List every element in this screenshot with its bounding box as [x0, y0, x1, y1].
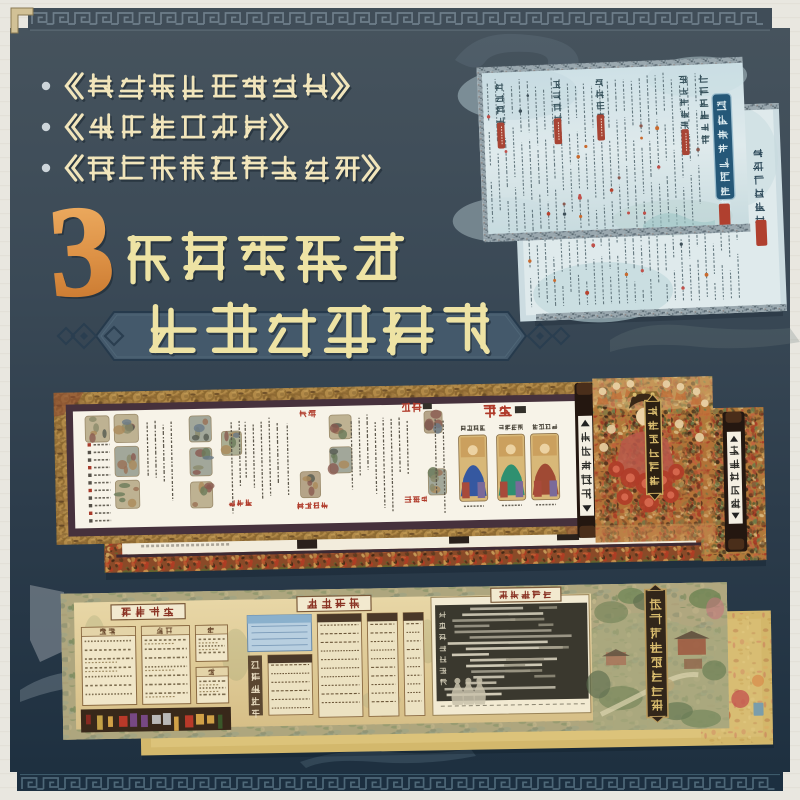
svg-text:3: 3 — [44, 177, 118, 324]
